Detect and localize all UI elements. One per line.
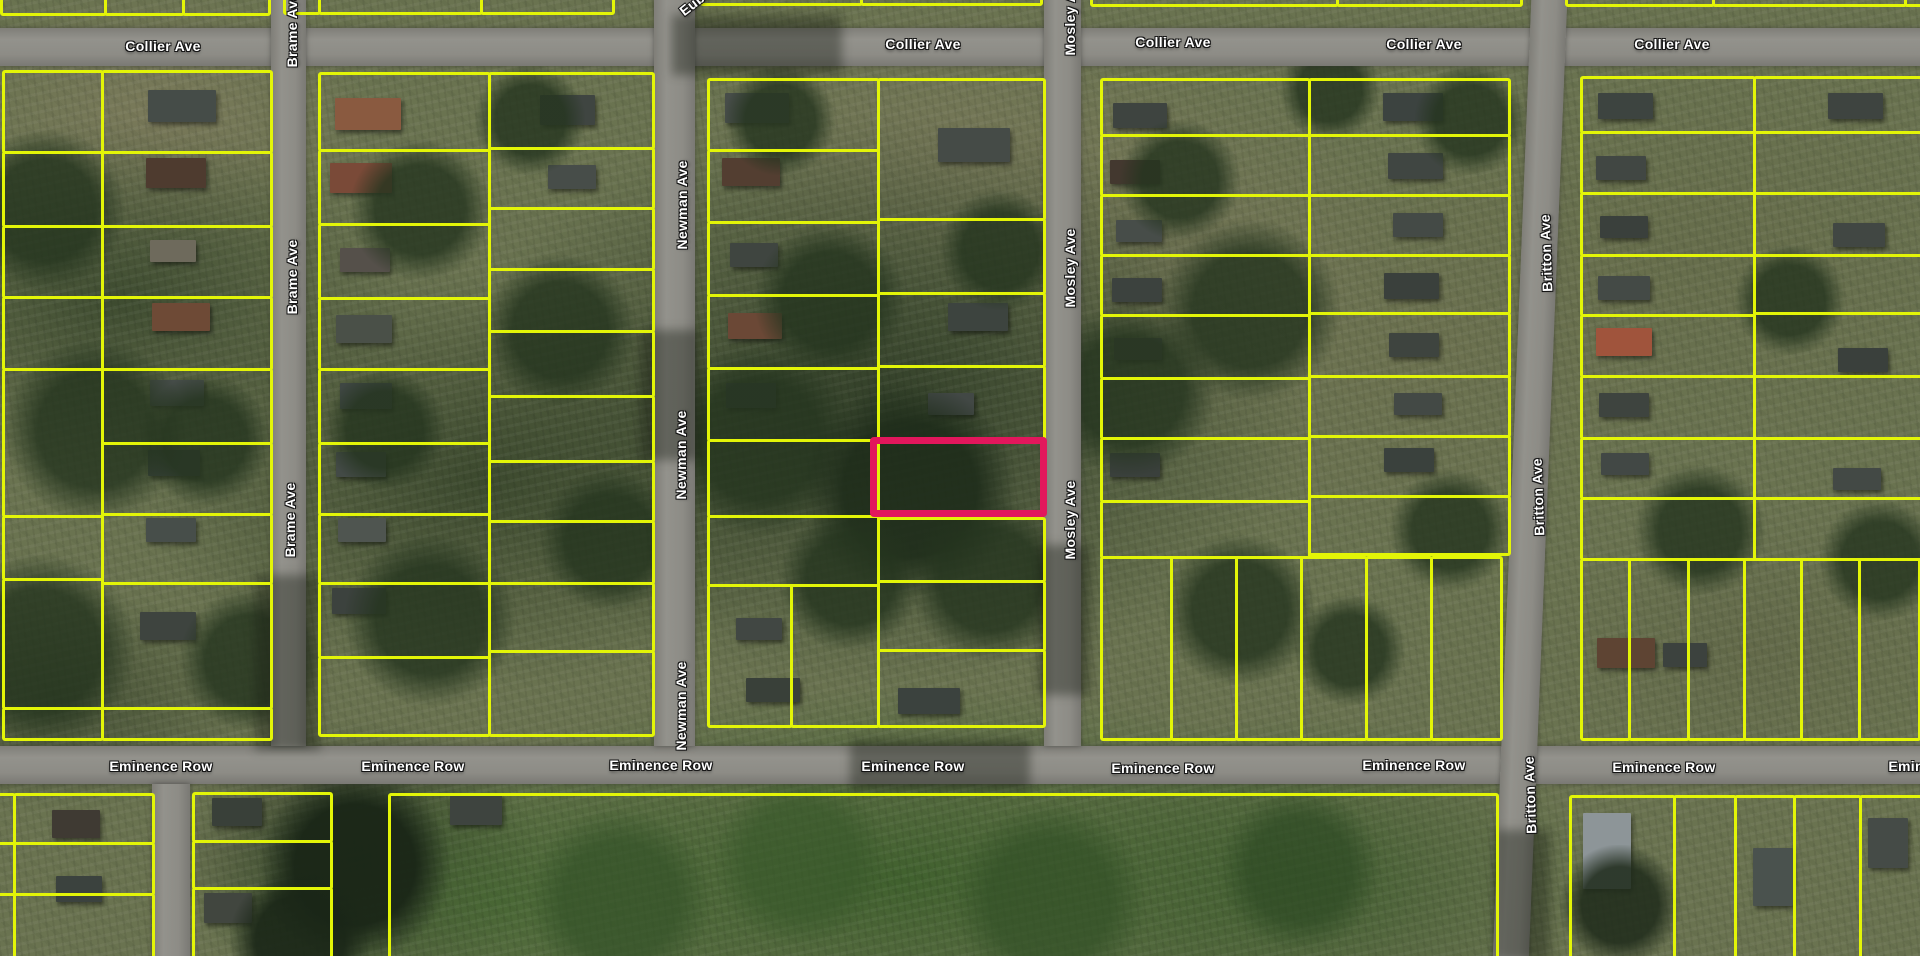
- parcel[interactable]: [1235, 556, 1303, 741]
- parcel[interactable]: [1580, 192, 1756, 257]
- parcel[interactable]: [1100, 556, 1173, 741]
- parcel[interactable]: [101, 513, 273, 585]
- street-label-mosley-ave: Mosley Ave: [1062, 229, 1078, 308]
- parcel[interactable]: [318, 442, 491, 516]
- map-canvas[interactable]: Collier AveCollier AveCollier AveCollier…: [0, 0, 1920, 956]
- parcel[interactable]: [13, 793, 155, 845]
- parcel[interactable]: [1580, 375, 1756, 440]
- street-label-newman-ave: Newman Ave: [673, 661, 689, 750]
- parcel[interactable]: [1580, 558, 1631, 741]
- parcel[interactable]: [101, 70, 273, 154]
- parcel[interactable]: [1308, 312, 1511, 378]
- parcel[interactable]: [707, 149, 880, 224]
- street-label-brame-ave: Brame Ave: [284, 240, 300, 315]
- parcel[interactable]: [1753, 312, 1920, 378]
- parcel[interactable]: [1753, 192, 1920, 257]
- parcel[interactable]: [877, 365, 1046, 441]
- parcel[interactable]: [2, 70, 104, 154]
- street-label-eminence-row: Eminence Row: [1111, 760, 1214, 776]
- parcel[interactable]: [707, 584, 793, 728]
- parcel[interactable]: [101, 707, 273, 741]
- parcel[interactable]: [480, 0, 615, 15]
- parcel[interactable]: [707, 78, 880, 152]
- parcel[interactable]: [1687, 558, 1746, 741]
- parcel[interactable]: [2, 151, 104, 228]
- parcel[interactable]: [1753, 131, 1920, 195]
- parcel[interactable]: [790, 584, 880, 728]
- parcel[interactable]: [192, 792, 333, 843]
- parcel[interactable]: [101, 225, 273, 299]
- parcel[interactable]: [1100, 314, 1311, 380]
- parcel[interactable]: [1753, 375, 1920, 440]
- parcel[interactable]: [1793, 795, 1862, 956]
- street-label-collier-ave: Collier Ave: [1386, 36, 1461, 52]
- parcel[interactable]: [1712, 0, 1907, 7]
- parcel[interactable]: [1565, 0, 1715, 7]
- street-label-eminence-row: Eminence Row: [1362, 757, 1465, 773]
- street-label-eminence-row: Eminence Row: [609, 757, 712, 773]
- parcel[interactable]: [1753, 497, 1920, 561]
- parcel[interactable]: [860, 0, 1043, 6]
- parcel[interactable]: [1904, 0, 1920, 7]
- parcel[interactable]: [1090, 0, 1339, 7]
- parcel[interactable]: [1308, 375, 1511, 438]
- parcel[interactable]: [101, 442, 273, 516]
- parcel[interactable]: [877, 580, 1046, 652]
- parcel[interactable]: [707, 367, 880, 442]
- street-label-eminence-row: Eminence Row: [109, 758, 212, 774]
- parcel[interactable]: [1300, 556, 1368, 741]
- street-label-newman-ave: Newman Ave: [674, 160, 690, 249]
- parcel[interactable]: [1800, 558, 1861, 741]
- parcel[interactable]: [192, 840, 333, 890]
- parcel[interactable]: [877, 292, 1046, 368]
- parcel[interactable]: [1580, 254, 1756, 317]
- street-label-eminence-row: Eminence Row: [1612, 759, 1715, 775]
- parcel[interactable]: [1100, 254, 1311, 317]
- parcel[interactable]: [318, 72, 491, 152]
- street-label-mosley-ave: Mosley Ave: [1062, 0, 1078, 56]
- parcel[interactable]: [1365, 556, 1433, 741]
- parcel[interactable]: [318, 0, 483, 15]
- street-label-brame-ave: Brame Ave: [282, 483, 298, 558]
- street-label-eminence-row: Eminence Row: [861, 758, 964, 774]
- parcel[interactable]: [1100, 134, 1311, 197]
- parcel[interactable]: [1858, 558, 1920, 741]
- parcel[interactable]: [1308, 78, 1511, 137]
- parcel[interactable]: [488, 72, 655, 150]
- parcel[interactable]: [488, 207, 655, 271]
- parcel[interactable]: [1580, 497, 1756, 561]
- parcel[interactable]: [1308, 134, 1511, 197]
- parcel[interactable]: [1100, 194, 1311, 257]
- parcel[interactable]: [101, 151, 273, 228]
- parcel[interactable]: [1308, 495, 1511, 556]
- parcel[interactable]: [318, 149, 491, 226]
- parcel[interactable]: [318, 297, 491, 371]
- parcel[interactable]: [13, 893, 155, 956]
- street-label-newman-ave: Newman Ave: [673, 410, 689, 499]
- parcel[interactable]: [1308, 254, 1511, 315]
- street-label-eminence-row: Eminence Row: [361, 758, 464, 774]
- parcel[interactable]: [1100, 500, 1311, 559]
- parcel[interactable]: [1100, 377, 1311, 440]
- tree-shadow: [672, 15, 842, 75]
- parcel[interactable]: [1753, 437, 1920, 500]
- parcel[interactable]: [707, 294, 880, 370]
- street-label-brame-ave: Brame Ave: [284, 0, 300, 67]
- parcel[interactable]: [2, 368, 104, 518]
- parcel[interactable]: [2, 225, 104, 299]
- parcel[interactable]: [318, 513, 491, 585]
- parcel[interactable]: [707, 221, 880, 297]
- parcel[interactable]: [104, 0, 185, 16]
- parcel[interactable]: [700, 0, 863, 6]
- parcel[interactable]: [1336, 0, 1523, 7]
- street-label-eminence-row: Eminence Row: [1888, 758, 1920, 774]
- parcel[interactable]: [877, 218, 1046, 295]
- parcel[interactable]: [1734, 795, 1796, 956]
- parcel[interactable]: [488, 460, 655, 523]
- parcel[interactable]: [877, 517, 1046, 583]
- parcel[interactable]: [101, 368, 273, 445]
- parcel[interactable]: [1580, 437, 1756, 500]
- parcel[interactable]: [13, 842, 155, 896]
- parcel[interactable]: [488, 582, 655, 653]
- parcel[interactable]: [488, 268, 655, 333]
- parcel[interactable]: [1430, 556, 1503, 741]
- parcel[interactable]: [707, 515, 880, 587]
- parcel[interactable]: [1753, 254, 1920, 315]
- parcel[interactable]: [1100, 437, 1311, 503]
- parcel[interactable]: [1569, 795, 1676, 956]
- parcel[interactable]: [488, 330, 655, 398]
- parcel[interactable]: [318, 582, 491, 659]
- parcel[interactable]: [101, 296, 273, 371]
- parcel[interactable]: [488, 395, 655, 463]
- parcel[interactable]: [877, 78, 1046, 221]
- street-label-collier-ave: Collier Ave: [1135, 34, 1210, 50]
- parcel[interactable]: [101, 582, 273, 710]
- parcel[interactable]: [318, 368, 491, 445]
- street-label-collier-ave: Collier Ave: [885, 36, 960, 52]
- street-label-britton-ave: Britton Ave: [1537, 214, 1556, 292]
- parcel[interactable]: [1308, 194, 1511, 257]
- parcel[interactable]: [1628, 558, 1690, 741]
- parcel[interactable]: [192, 887, 333, 956]
- parcel[interactable]: [2, 578, 104, 710]
- tree-shadow: [1495, 830, 1550, 956]
- parcel[interactable]: [1580, 131, 1756, 195]
- parcel[interactable]: [1859, 795, 1920, 956]
- parcel[interactable]: [1743, 558, 1803, 741]
- parcel[interactable]: [1673, 795, 1737, 956]
- parcel[interactable]: [488, 147, 655, 210]
- street-label-britton-ave: Britton Ave: [1529, 458, 1548, 536]
- street-label-mosley-ave: Mosley Ave: [1062, 481, 1078, 560]
- parcel[interactable]: [488, 520, 655, 585]
- parcel[interactable]: [1580, 314, 1756, 378]
- parcel[interactable]: [707, 439, 880, 518]
- parcel[interactable]: [388, 793, 1499, 956]
- parcel[interactable]: [1580, 76, 1756, 134]
- road-side-road: [152, 784, 190, 956]
- parcel[interactable]: [2, 707, 104, 741]
- parcel[interactable]: [2, 296, 104, 371]
- selected-parcel[interactable]: [870, 437, 1047, 517]
- parcel[interactable]: [1100, 78, 1311, 137]
- street-label-collier-ave: Collier Ave: [1634, 36, 1709, 52]
- parcel[interactable]: [1753, 76, 1920, 134]
- parcel[interactable]: [318, 223, 491, 300]
- parcel[interactable]: [0, 0, 107, 16]
- street-label-collier-ave: Collier Ave: [125, 38, 200, 54]
- parcel[interactable]: [1308, 435, 1511, 498]
- parcel[interactable]: [182, 0, 271, 16]
- parcel[interactable]: [1170, 556, 1238, 741]
- parcel[interactable]: [488, 650, 655, 737]
- parcel[interactable]: [877, 649, 1046, 728]
- street-label-britton-ave: Britton Ave: [1521, 756, 1540, 834]
- parcel[interactable]: [2, 515, 104, 581]
- parcel[interactable]: [318, 656, 491, 737]
